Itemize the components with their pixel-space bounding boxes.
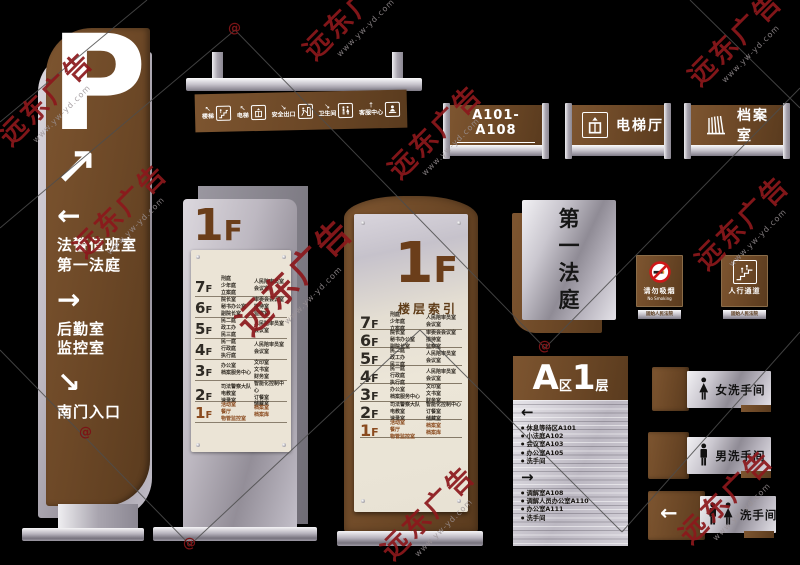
door-sign-room-range: A101-A108	[443, 103, 549, 159]
bullet-icon: ●	[521, 450, 525, 455]
zone-letter: A	[532, 361, 558, 395]
left-arrow-icon: ←	[521, 405, 628, 420]
rooms-right: 审委会会议室接待室监察室	[254, 297, 287, 317]
zone-header: A 区 1 层	[513, 356, 628, 400]
pylon-base	[337, 531, 483, 546]
floor-header: 1F	[394, 236, 458, 292]
sign-tab	[741, 471, 771, 478]
rooms-right: 人民陪审员室会议室	[254, 321, 287, 335]
floor-row: 3F 办公室档案服务中心 文印室文书室财务室	[195, 360, 287, 381]
floor-cell: 3F	[360, 385, 390, 404]
pylon-base	[153, 527, 317, 541]
screw-icon	[282, 255, 286, 259]
floor-rows: 7F 刑庭少年庭立案庭 人民陪审员室会议室 6F 院长室秘书办公室副院长室 审委…	[195, 276, 287, 423]
floor-row: 7F 刑庭少年庭立案庭 人民陪审员室会议室	[195, 276, 287, 297]
screw-icon	[282, 443, 286, 447]
bullet-icon: ●	[521, 490, 525, 495]
pictogram-icon	[216, 105, 231, 120]
floor-row: 5F 民二庭政工办民三庭 人民陪审员室会议室	[195, 318, 287, 339]
sign-strip	[450, 145, 542, 156]
floor-cell: 7F	[360, 313, 390, 332]
sign-sublabel: No Smoking	[647, 297, 671, 302]
hanging-item: ↖ 楼梯	[202, 105, 231, 121]
male-female-icon	[706, 502, 735, 527]
direction-group: → 后勤室监控室	[57, 286, 147, 360]
sign-end-cap	[565, 103, 572, 159]
floor-rows: 7F 刑庭少年庭立案庭 人民陪审员室会议室 6F 院长室秘书办公室副院长室 审委…	[360, 312, 462, 438]
pictogram-icon	[385, 101, 400, 116]
zone-floor-suffix: 层	[596, 375, 609, 394]
zone-list-item: ●洗手间	[521, 513, 628, 521]
rooms-right: 审委会会议室接待室监察室	[426, 330, 462, 350]
zone-suffix: 区	[559, 375, 572, 394]
rooms-right: 文印室文书室财务室	[254, 360, 287, 380]
files-icon	[703, 112, 729, 138]
hanging-sign: ↖ 楼梯 ↖ 电梯 ↘ 安全出口	[186, 52, 422, 136]
screw-icon	[196, 255, 200, 259]
screw-icon	[196, 443, 200, 447]
floor-row: 3F 办公室档案服务中心 文印室文书室财务室	[360, 384, 462, 402]
pylon-base	[22, 528, 144, 541]
screw-icon	[457, 221, 461, 225]
room-label: 洗手间	[527, 456, 546, 465]
sign-end-cap	[783, 103, 790, 159]
floor-suffix: F	[433, 250, 458, 291]
floor-suffix: F	[224, 214, 243, 247]
sign-block	[648, 432, 689, 479]
floor-row: 4F 民一庭行政庭执行庭 人民陪审员室会议室	[195, 339, 287, 360]
floor-cell: 1F	[360, 421, 390, 440]
rooms-left: 院长室秘书办公室副院长室	[221, 297, 254, 317]
hanging-item-meta: ↘ 卫生间	[318, 103, 336, 117]
sign-block: ←	[648, 491, 705, 540]
hanging-item-label: 楼梯	[202, 114, 214, 120]
hanging-item-meta: ↖ 电梯	[237, 105, 249, 119]
court-sign-character: 一	[559, 234, 580, 259]
rooms-right: 人民陪审员室会议室	[426, 315, 462, 329]
rooms-right: 人民陪审员室会议室	[426, 351, 462, 365]
parking-symbol: P	[50, 18, 147, 150]
watermark: 远东广告www.yw-yd.com	[678, 0, 797, 99]
org-strip: 固始人民法院	[638, 310, 681, 319]
floor-row: 5F 民二庭政工办民三庭 人民陪审员室会议室	[360, 348, 462, 366]
zone-list-right: ●调解室A108●调解人员办公室A110●办公室A111●洗手间	[521, 488, 628, 522]
direction-groups: ← 法警值班室第一法庭 → 后勤室监控室 ↘ 南门入口	[57, 202, 147, 423]
at-mark: @	[228, 21, 241, 36]
sign-block	[652, 367, 689, 411]
floor-row: 6F 院长室秘书办公室副院长室 审委会会议室接待室监察室	[360, 330, 462, 348]
sign-label: 电梯厅	[616, 115, 664, 135]
zone-floor: 1	[572, 361, 596, 395]
hanging-item: ↘ 安全出口	[271, 103, 312, 119]
floor-cell: 6F	[195, 298, 221, 317]
rooms-left: 民一庭行政庭执行庭	[221, 339, 254, 359]
hanging-panel: ↖ 楼梯 ↖ 电梯 ↘ 安全出口	[195, 90, 408, 133]
floor-cell: 2F	[360, 403, 390, 422]
floor-row: 4F 民一庭行政庭执行庭 人民陪审员室会议室	[360, 366, 462, 384]
sign-body: 请勿吸烟 No Smoking	[636, 255, 683, 307]
zone-list-item: ●洗手间	[521, 457, 628, 465]
screw-icon	[457, 499, 461, 503]
bullet-icon: ●	[521, 458, 525, 463]
direction-arrow-icon: ↘	[57, 369, 147, 397]
hanging-item: ↑ 客服中心	[359, 101, 400, 117]
sign-plate: 女洗手间	[687, 371, 771, 408]
direction-labels: 南门入口	[57, 403, 147, 423]
pictogram-icon	[297, 103, 312, 118]
floor-cell: 7F	[195, 277, 221, 296]
sign-body: 电梯厅	[572, 105, 664, 145]
court-sign-character: 法	[559, 261, 580, 286]
rooms-right: 人民陪审员室会议室	[426, 369, 462, 383]
direction-labels: 法警值班室第一法庭	[57, 236, 147, 276]
rooms-left: 办公室档案服务中心	[390, 387, 426, 401]
floor-cell: 5F	[360, 349, 390, 368]
pictogram-icon	[338, 102, 353, 117]
bullet-icon: ●	[521, 425, 525, 430]
sign-strip	[572, 145, 664, 156]
floor-cell: 6F	[360, 331, 390, 350]
courtroom-sign: 第一法庭	[512, 200, 616, 334]
sign-end-cap	[684, 103, 691, 159]
floor-row: 2F 司法警察大队电教室速录室 智能化控制中心订餐室储藏室	[195, 381, 287, 402]
zone-directory-sign: A 区 1 层 ← ●休息等待区A101●小法庭A102●会议室A103●办公室…	[513, 356, 628, 546]
rooms-left: 活动室餐厅物管监控室	[390, 420, 426, 440]
sign-label: 男洗手间	[715, 448, 765, 464]
bullet-icon: ●	[521, 506, 525, 511]
sign-plate: 第一法庭	[522, 200, 616, 320]
floor-row: 1F 活动室餐厅物管监控室 档案室档案库	[360, 420, 462, 438]
sign-end-cap	[664, 103, 671, 159]
floor-row: 6F 院长室秘书办公室副院长室 审委会会议室接待室监察室	[195, 297, 287, 318]
hanging-item: ↘ 卫生间	[318, 102, 353, 118]
sign-plate: 洗手间	[700, 496, 776, 533]
left-arrow-icon: ←	[660, 503, 678, 524]
hanging-item-meta: ↑ 客服中心	[359, 102, 383, 117]
sign-label: 女洗手间	[715, 382, 765, 398]
floor-cell: 5F	[195, 319, 221, 338]
rooms-right: 智能化控制中心订餐室储藏室	[426, 402, 462, 422]
screw-icon	[361, 221, 365, 225]
rooms-left: 民二庭政工办民三庭	[221, 318, 254, 338]
court-sign-character: 第	[559, 207, 580, 232]
hanging-item-label: 卫生间	[318, 111, 336, 117]
directory-panel: 7F 刑庭少年庭立案庭 人民陪审员室会议室 6F 院长室秘书办公室副院长室 审委…	[191, 250, 291, 452]
floor-cell: 1F	[195, 403, 221, 422]
floor-header: 1F	[193, 204, 243, 248]
rooms-right: 档案室档案库	[426, 423, 462, 437]
room-range-label: A101-A108	[457, 108, 534, 143]
org-strip: 固始人民法院	[723, 310, 766, 319]
sign-body: A101-A108	[450, 105, 542, 145]
screw-icon	[361, 499, 365, 503]
sign-tab	[741, 405, 771, 412]
bullet-icon: ●	[521, 433, 525, 438]
door-sign-archive: 档案室	[684, 103, 790, 159]
door-sign-elevator-hall: 电梯厅	[565, 103, 671, 159]
bullet-icon: ●	[521, 515, 525, 520]
rooms-right: 档案室档案库	[254, 405, 287, 419]
sign-label: 洗手间	[740, 507, 778, 523]
floor-number: 1	[193, 200, 224, 251]
hanging-item-meta: ↖ 楼梯	[202, 106, 214, 120]
hanging-item: ↖ 电梯	[237, 104, 266, 120]
floor-row: 2F 司法警察大队电教室速录室 智能化控制中心订餐室储藏室	[360, 402, 462, 420]
direction-arrow-icon: →	[57, 286, 147, 314]
sign-strip	[691, 145, 783, 156]
directory-panel: 1F 楼层索引 7F 刑庭少年庭立案庭 人民陪审员室会议室 6F 院长室秘书办公…	[354, 214, 468, 512]
rooms-left: 民一庭行政庭执行庭	[390, 366, 426, 386]
room-label: 洗手间	[527, 513, 546, 522]
rooms-right: 人民陪审员室会议室	[254, 279, 287, 293]
direction-group: ← 法警值班室第一法庭	[57, 202, 147, 276]
sign-end-cap	[443, 103, 450, 159]
no-smoking-icon	[648, 260, 672, 284]
sign-body: 档案室	[691, 105, 783, 145]
floor-number: 1	[394, 231, 433, 296]
direction-labels: 后勤室监控室	[57, 320, 147, 360]
rooms-left: 刑庭少年庭立案庭	[221, 276, 254, 296]
right-arrow-icon: →	[521, 470, 628, 485]
floor-cell: 2F	[195, 385, 221, 404]
hanging-item-label: 客服中心	[359, 110, 383, 117]
sign-plate: 男洗手间	[687, 437, 771, 474]
up-right-arrow-icon: ↗	[54, 142, 98, 194]
sign-label: 人行通道	[729, 286, 761, 296]
sign-tab	[744, 531, 774, 538]
zone-list-left: ●休息等待区A101●小法庭A102●会议室A103●办公室A105●洗手间	[521, 423, 628, 465]
floor-cell: 4F	[360, 367, 390, 386]
pedestrian-passage-sign: 人行通道 固始人民法院	[721, 255, 768, 319]
hanging-item-label: 安全出口	[272, 112, 296, 119]
bullet-icon: ●	[521, 498, 525, 503]
signage-poster: P ↗ ← 法警值班室第一法庭 → 后勤室监控室 ↘ 南门入口	[0, 0, 800, 565]
direction-group: ↘ 南门入口	[57, 369, 147, 423]
rooms-right: 人民陪审员室会议室	[254, 342, 287, 356]
direction-arrow-icon: ←	[57, 202, 147, 230]
hanging-item-label: 电梯	[237, 113, 249, 119]
floor-cell: 3F	[195, 361, 221, 380]
sign-label: 档案室	[737, 105, 783, 145]
stairs-people-icon	[733, 260, 757, 284]
hanging-item-meta: ↘ 安全出口	[271, 104, 295, 119]
pictogram-icon	[251, 104, 266, 119]
elevator-icon	[582, 112, 608, 138]
rooms-right: 智能化控制中心订餐室储藏室	[254, 381, 287, 408]
rooms-left: 活动室餐厅物管监控室	[221, 402, 254, 422]
female-icon	[697, 377, 710, 402]
rooms-left: 办公室档案服务中心	[221, 363, 254, 377]
at-mark: @	[538, 339, 551, 354]
court-sign-character: 庭	[559, 288, 580, 313]
no-smoking-sign: 请勿吸烟 No Smoking 固始人民法院	[636, 255, 683, 319]
floor-cell: 4F	[195, 340, 221, 359]
floor-row: 7F 刑庭少年庭立案庭 人民陪审员室会议室	[360, 312, 462, 330]
male-icon	[697, 443, 710, 468]
sign-end-cap	[542, 103, 549, 159]
sign-body: 人行通道	[721, 255, 768, 307]
floor-row: 1F 活动室餐厅物管监控室 档案室档案库	[195, 402, 287, 423]
zone-body: ← ●休息等待区A101●小法庭A102●会议室A103●办公室A105●洗手间…	[513, 400, 628, 546]
sign-label: 请勿吸烟	[644, 286, 676, 296]
bullet-icon: ●	[521, 441, 525, 446]
